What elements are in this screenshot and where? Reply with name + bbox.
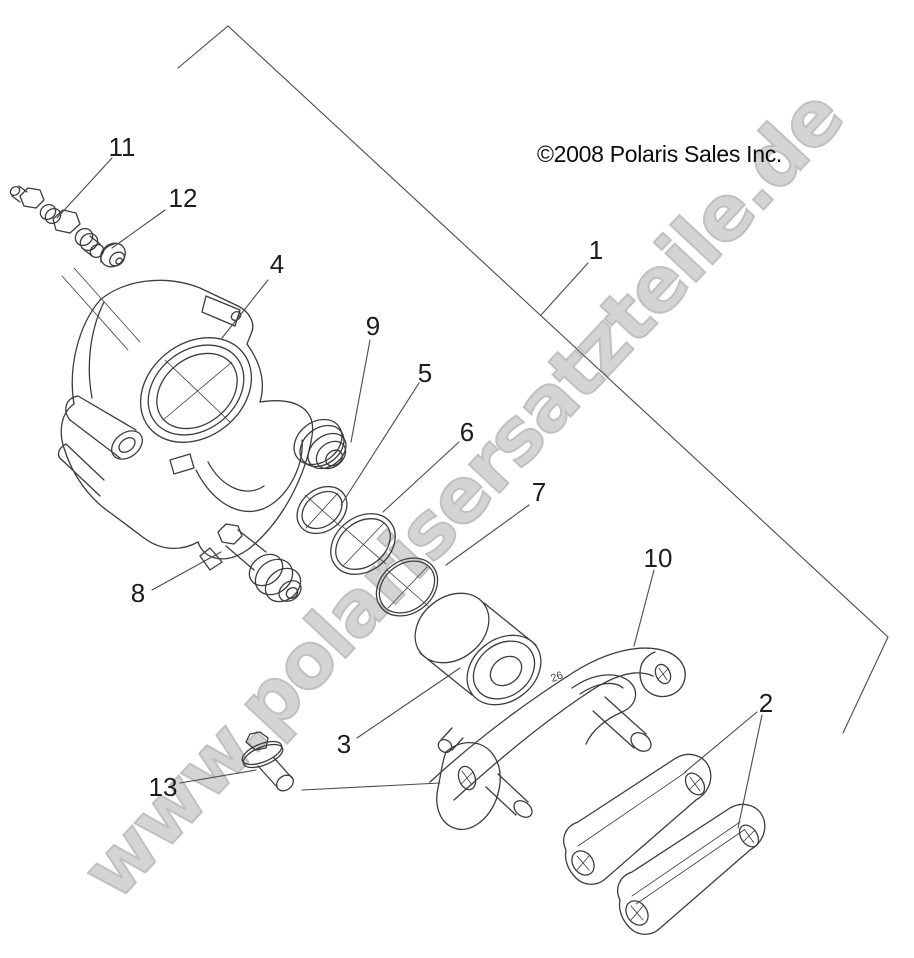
callout-6: 6 bbox=[460, 417, 474, 447]
bleeder-valve-drawing bbox=[9, 185, 140, 350]
caliper-body-drawing bbox=[59, 280, 313, 570]
brake-pads-drawing bbox=[564, 754, 765, 934]
callout-4: 4 bbox=[270, 249, 284, 279]
callout-9: 9 bbox=[366, 311, 380, 341]
callout-labels: 1 2 3 4 5 6 7 8 9 10 11 12 13 bbox=[109, 132, 774, 802]
callout-7: 7 bbox=[532, 477, 546, 507]
callout-10: 10 bbox=[644, 543, 673, 573]
callout-8: 8 bbox=[131, 578, 145, 608]
callout-11: 11 bbox=[109, 132, 136, 162]
flange-bolt-drawing bbox=[239, 732, 296, 794]
copyright-text: ©2008 Polaris Sales Inc. bbox=[537, 141, 782, 168]
callout-12: 12 bbox=[169, 183, 198, 213]
o-ring-drawing bbox=[319, 501, 407, 587]
callout-3: 3 bbox=[337, 729, 351, 759]
bracket-size-marking: 26 bbox=[549, 669, 565, 684]
piston-drawing bbox=[401, 579, 554, 719]
bleeder-cap-drawing bbox=[96, 238, 130, 271]
leader-lines bbox=[57, 158, 762, 828]
callout-5: 5 bbox=[418, 358, 432, 388]
piston-ring-drawing bbox=[365, 546, 449, 628]
callout-2: 2 bbox=[759, 688, 773, 718]
piston-dust-boot-drawing bbox=[285, 410, 353, 476]
assembly-frame-lines bbox=[178, 26, 888, 733]
seal-ring-drawing bbox=[288, 477, 356, 543]
callout-13: 13 bbox=[149, 772, 178, 802]
brake-caliper-parts-diagram: www.polarisersatzteile.de bbox=[0, 0, 914, 958]
callout-1: 1 bbox=[589, 235, 603, 265]
